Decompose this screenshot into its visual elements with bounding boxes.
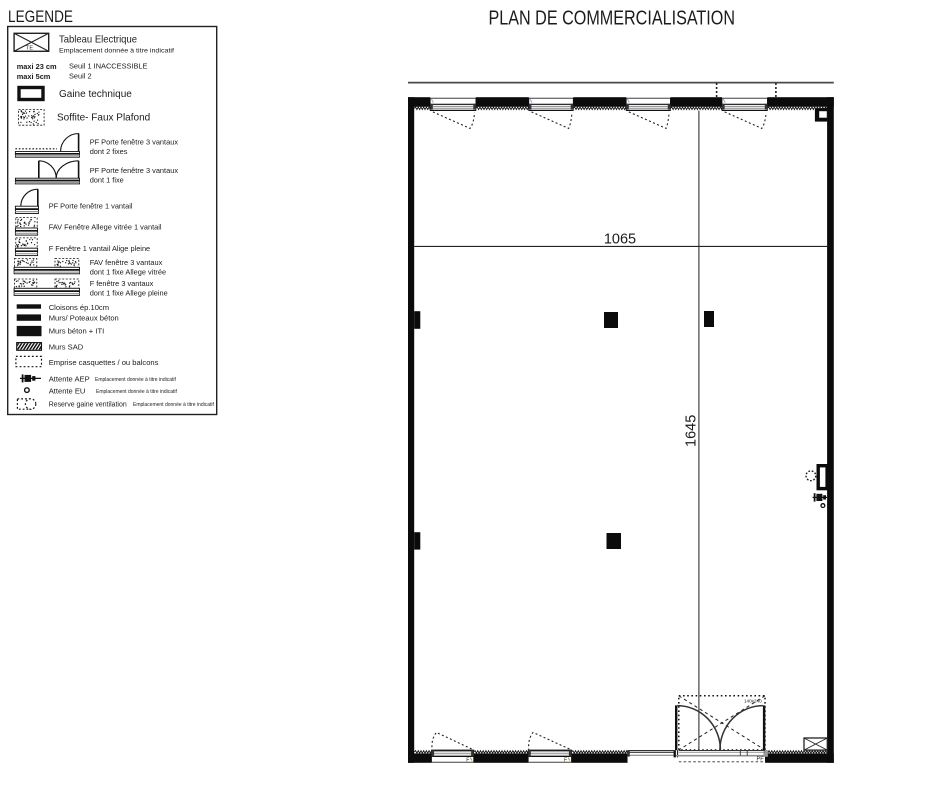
svg-text:dont 1 fixe: dont 1 fixe [90, 176, 124, 185]
svg-text:1065: 1065 [604, 232, 636, 248]
svg-text:dont 1 fixe Allege pleine: dont 1 fixe Allege pleine [90, 289, 168, 298]
svg-text:FAV Fenêtre Allege vitrée 1 va: FAV Fenêtre Allege vitrée 1 vantail [49, 223, 162, 232]
svg-text:PF Porte fenêtre 1 vantail: PF Porte fenêtre 1 vantail [49, 202, 133, 211]
svg-text:PF Porte fenêtre 3 vantaux: PF Porte fenêtre 3 vantaux [90, 166, 179, 175]
svg-text:Emprise casquettes / ou balcon: Emprise casquettes / ou balcons [49, 358, 159, 367]
svg-text:Emplacement donnée à titre ind: Emplacement donnée à titre indicatif [96, 389, 177, 395]
svg-text:dont 2 fixes: dont 2 fixes [90, 147, 128, 156]
svg-text:Gaine technique: Gaine technique [59, 89, 132, 100]
svg-text:Murs/ Poteaux béton: Murs/ Poteaux béton [49, 314, 119, 323]
svg-text:FAV fenêtre 3 vantaux: FAV fenêtre 3 vantaux [90, 258, 163, 267]
svg-text:PF: PF [757, 756, 765, 762]
svg-text:Emplacement donnée à titre ind: Emplacement donnée à titre indicatif [133, 402, 214, 408]
svg-text:140x240: 140x240 [744, 699, 762, 704]
svg-text:Attente EU: Attente EU [49, 386, 86, 395]
svg-text:PLAN DE COMMERCIALISATION: PLAN DE COMMERCIALISATION [489, 7, 736, 30]
svg-text:F: F [466, 757, 469, 763]
svg-text:F fenêtre 3 vantaux: F fenêtre 3 vantaux [90, 279, 154, 288]
svg-text:LEGENDE: LEGENDE [8, 8, 73, 26]
svg-text:Seuil 1 INACCESSIBLE: Seuil 1 INACCESSIBLE [69, 62, 148, 71]
svg-text:Emplacement donnée à titre ind: Emplacement donnée à titre indicatif [95, 377, 176, 383]
svg-text:maxi 23 cm: maxi 23 cm [17, 62, 57, 71]
svg-text:dont 1 fixe Allege vitrée: dont 1 fixe Allege vitrée [90, 268, 166, 277]
svg-text:Tableau Electrique: Tableau Electrique [59, 34, 137, 46]
svg-text:F: F [564, 757, 567, 763]
svg-text:Emplacement donnée à titre ind: Emplacement donnée à titre indicatif [59, 48, 174, 55]
svg-text:Murs béton + ITI: Murs béton + ITI [49, 327, 104, 336]
svg-text:Murs SAD: Murs SAD [49, 343, 84, 352]
svg-text:Attente AEP: Attente AEP [49, 374, 90, 383]
svg-text:Cloisons ép.10cm: Cloisons ép.10cm [49, 303, 109, 312]
svg-text:maxi 5cm: maxi 5cm [17, 72, 51, 81]
svg-text:Reserve gaine ventilation: Reserve gaine ventilation [49, 399, 127, 408]
svg-text:PF Porte fenêtre 3 vantaux: PF Porte fenêtre 3 vantaux [90, 138, 179, 147]
svg-text:1645: 1645 [684, 415, 700, 447]
svg-text:F Fenêtre 1 vantail Alige plei: F Fenêtre 1 vantail Alige pleine [49, 244, 150, 253]
svg-text:Seuil 2: Seuil 2 [69, 72, 92, 81]
svg-text:Soffite- Faux Plafond: Soffite- Faux Plafond [57, 113, 150, 124]
svg-text:TE: TE [26, 46, 33, 52]
